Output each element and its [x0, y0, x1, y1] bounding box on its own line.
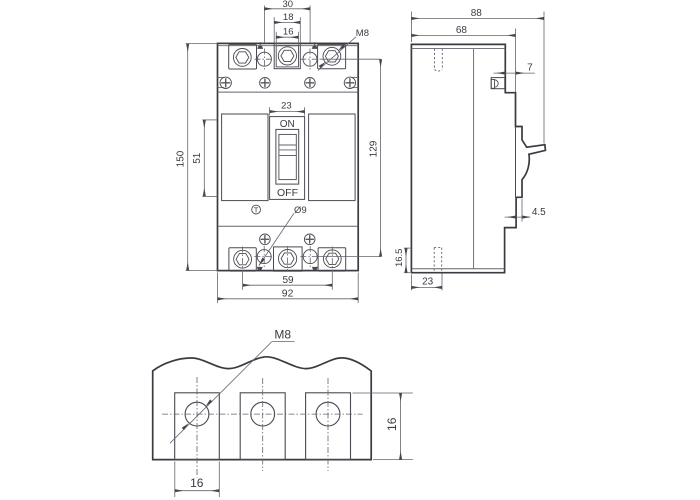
svg-text:150: 150: [175, 150, 186, 167]
svg-text:68: 68: [456, 25, 468, 36]
svg-text:M8: M8: [356, 28, 369, 39]
svg-text:59: 59: [282, 275, 294, 286]
svg-text:T: T: [254, 205, 259, 214]
svg-text:ON: ON: [280, 119, 295, 130]
svg-text:23: 23: [281, 101, 292, 112]
svg-text:16: 16: [190, 476, 204, 490]
svg-text:7: 7: [527, 63, 533, 74]
svg-text:129: 129: [368, 140, 379, 157]
svg-text:16.5: 16.5: [394, 249, 405, 268]
svg-text:16: 16: [385, 417, 399, 431]
svg-text:92: 92: [282, 288, 294, 300]
svg-text:23: 23: [422, 277, 434, 288]
svg-text:Ø9: Ø9: [294, 205, 307, 216]
svg-text:M8: M8: [274, 328, 291, 342]
svg-text:30: 30: [283, 0, 294, 10]
svg-text:51: 51: [192, 152, 203, 164]
svg-text:4.5: 4.5: [532, 207, 546, 218]
svg-text:OFF: OFF: [277, 187, 298, 199]
svg-text:16: 16: [283, 27, 294, 38]
svg-text:88: 88: [471, 8, 483, 19]
svg-text:18: 18: [283, 12, 294, 23]
